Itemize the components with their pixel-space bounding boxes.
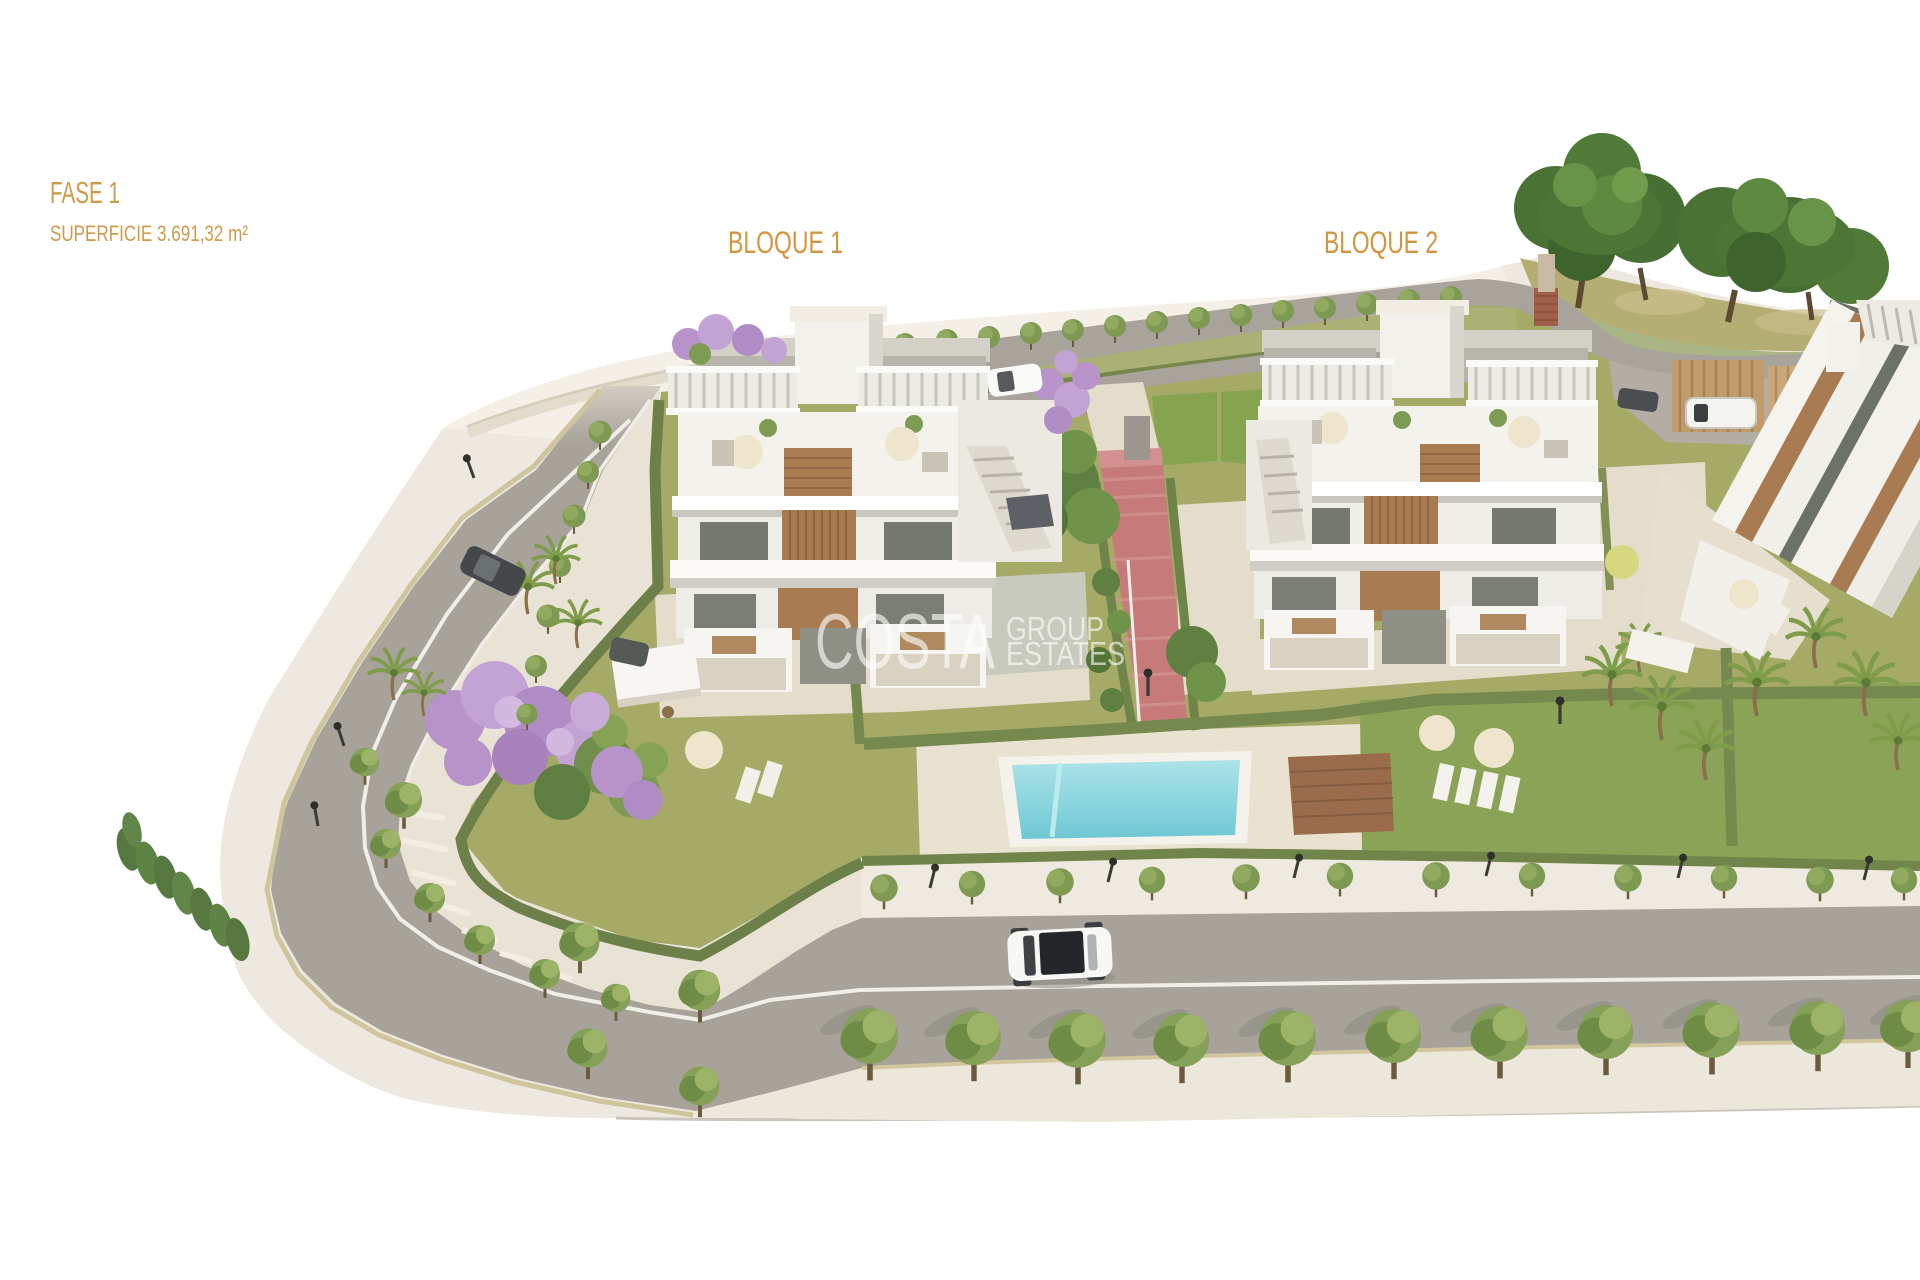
svg-text:BLOQUE 2: BLOQUE 2 <box>1324 224 1438 260</box>
svg-text:COSTA: COSTA <box>815 597 995 685</box>
svg-text:BLOQUE 1: BLOQUE 1 <box>728 224 843 260</box>
svg-text:ESTATES: ESTATES <box>1006 635 1125 672</box>
svg-text:FASE 1: FASE 1 <box>50 175 120 210</box>
svg-text:SUPERFICIE 3.691,32 m²: SUPERFICIE 3.691,32 m² <box>50 221 248 246</box>
